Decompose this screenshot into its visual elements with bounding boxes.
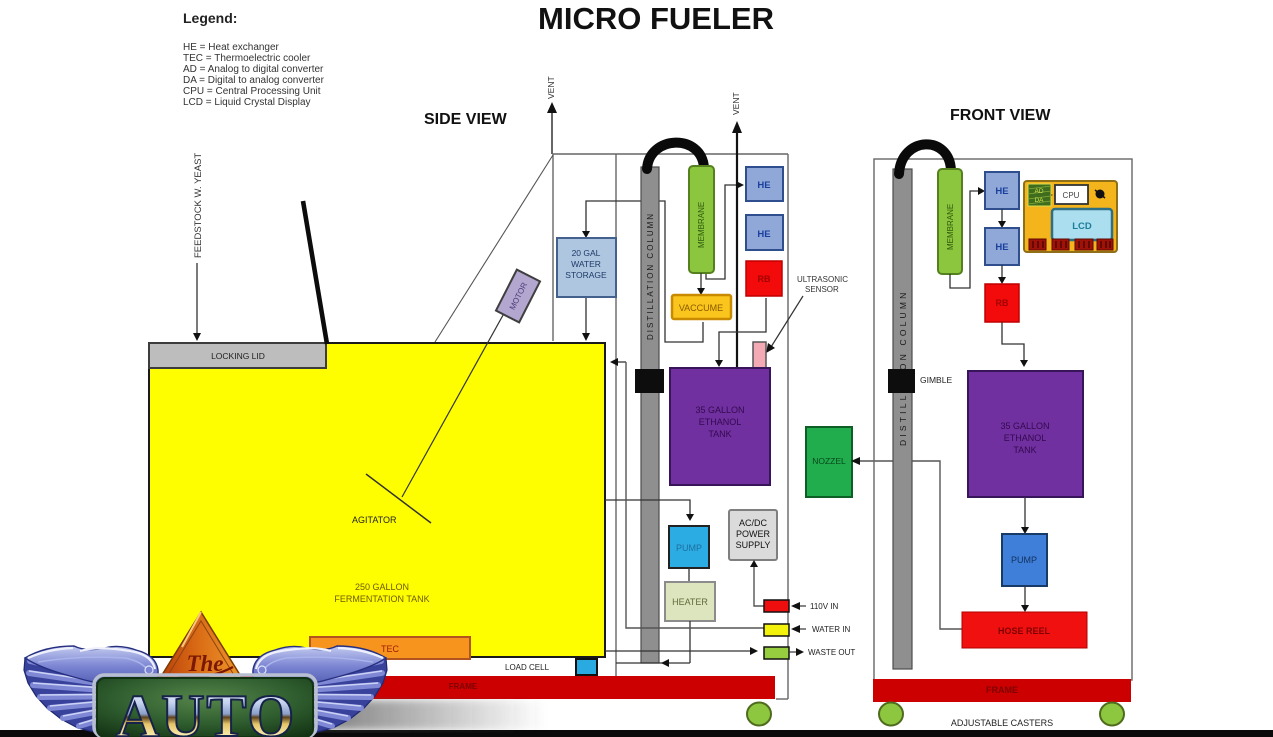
svg-text:AUTO: AUTO [116, 683, 296, 737]
svg-text:HE: HE [995, 186, 1008, 197]
svg-text:AD = Analog to digital convert: AD = Analog to digital converter [183, 64, 324, 75]
svg-text:MICRO FUELER: MICRO FUELER [538, 1, 774, 36]
svg-text:FRONT VIEW: FRONT VIEW [950, 107, 1051, 124]
svg-text:SIDE VIEW: SIDE VIEW [424, 111, 508, 128]
svg-text:HOSE REEL: HOSE REEL [998, 626, 1051, 636]
svg-text:DA: DA [1034, 197, 1044, 204]
svg-text:ULTRASONIC: ULTRASONIC [797, 275, 848, 284]
svg-text:HE: HE [757, 180, 770, 191]
svg-text:FRAME: FRAME [986, 685, 1018, 695]
svg-text:RB: RB [996, 298, 1009, 308]
svg-text:250 GALLON: 250 GALLON [355, 582, 409, 592]
svg-text:TANK: TANK [708, 429, 731, 439]
svg-text:PUMP: PUMP [676, 543, 702, 553]
svg-text:TEC = Thermoelectric cooler: TEC = Thermoelectric cooler [183, 53, 311, 64]
svg-text:LCD: LCD [1072, 221, 1092, 232]
svg-text:STORAGE: STORAGE [565, 270, 607, 280]
svg-text:AGITATOR: AGITATOR [352, 515, 397, 525]
svg-text:Legend:: Legend: [183, 10, 237, 26]
svg-text:DA = Digital to analog convert: DA = Digital to analog converter [183, 75, 325, 86]
svg-text:HEATER: HEATER [672, 597, 708, 607]
svg-text:110V IN: 110V IN [810, 602, 839, 611]
svg-text:TEC: TEC [381, 644, 400, 654]
svg-text:PUMP: PUMP [1011, 555, 1037, 565]
svg-text:WATER IN: WATER IN [812, 625, 850, 634]
svg-text:DISTILLATION COLUMN: DISTILLATION COLUMN [646, 212, 655, 340]
svg-text:GIMBLE: GIMBLE [920, 375, 952, 385]
svg-text:FRAME: FRAME [449, 682, 478, 691]
svg-text:35 GALLON: 35 GALLON [695, 405, 744, 415]
svg-text:FERMENTATION TANK: FERMENTATION TANK [334, 594, 429, 604]
svg-text:TANK: TANK [1013, 445, 1036, 455]
svg-text:MEMBRANE: MEMBRANE [946, 204, 955, 250]
svg-text:20 GAL: 20 GAL [572, 248, 601, 258]
svg-text:HE = Heat exchanger: HE = Heat exchanger [183, 42, 280, 53]
svg-text:SUPPLY: SUPPLY [736, 540, 771, 550]
svg-text:35 GALLON: 35 GALLON [1000, 421, 1049, 431]
svg-text:DISTILLATION COLUMN: DISTILLATION COLUMN [898, 289, 908, 446]
svg-text:WATER: WATER [571, 259, 601, 269]
svg-text:CPU: CPU [1063, 191, 1080, 200]
svg-text:VENT: VENT [731, 92, 741, 115]
svg-text:SENSOR: SENSOR [805, 285, 839, 294]
svg-text:AC/DC: AC/DC [739, 518, 768, 528]
svg-text:ETHANOL: ETHANOL [699, 417, 742, 427]
svg-text:LOAD CELL: LOAD CELL [505, 663, 550, 672]
svg-text:AD: AD [1034, 188, 1043, 195]
svg-text:ADJUSTABLE CASTERS: ADJUSTABLE CASTERS [951, 718, 1053, 728]
svg-text:WASTE OUT: WASTE OUT [808, 648, 855, 657]
svg-text:MEMBRANE: MEMBRANE [697, 202, 706, 248]
svg-text:POWER: POWER [736, 529, 771, 539]
svg-text:CPU = Central Processing Unit: CPU = Central Processing Unit [183, 86, 321, 97]
svg-text:RB: RB [758, 274, 771, 284]
svg-text:ETHANOL: ETHANOL [1004, 433, 1047, 443]
svg-text:VENT: VENT [546, 76, 556, 99]
svg-text:VACCUME: VACCUME [679, 303, 723, 313]
svg-text:NOZZEL: NOZZEL [812, 456, 846, 466]
svg-text:HE: HE [757, 229, 770, 240]
svg-text:FEEDSTOCK W. YEAST: FEEDSTOCK W. YEAST [193, 153, 204, 258]
svg-text:HE: HE [995, 242, 1008, 253]
svg-text:LOCKING LID: LOCKING LID [211, 351, 265, 361]
svg-text:LCD = Liquid Crystal Display: LCD = Liquid Crystal Display [183, 97, 311, 108]
